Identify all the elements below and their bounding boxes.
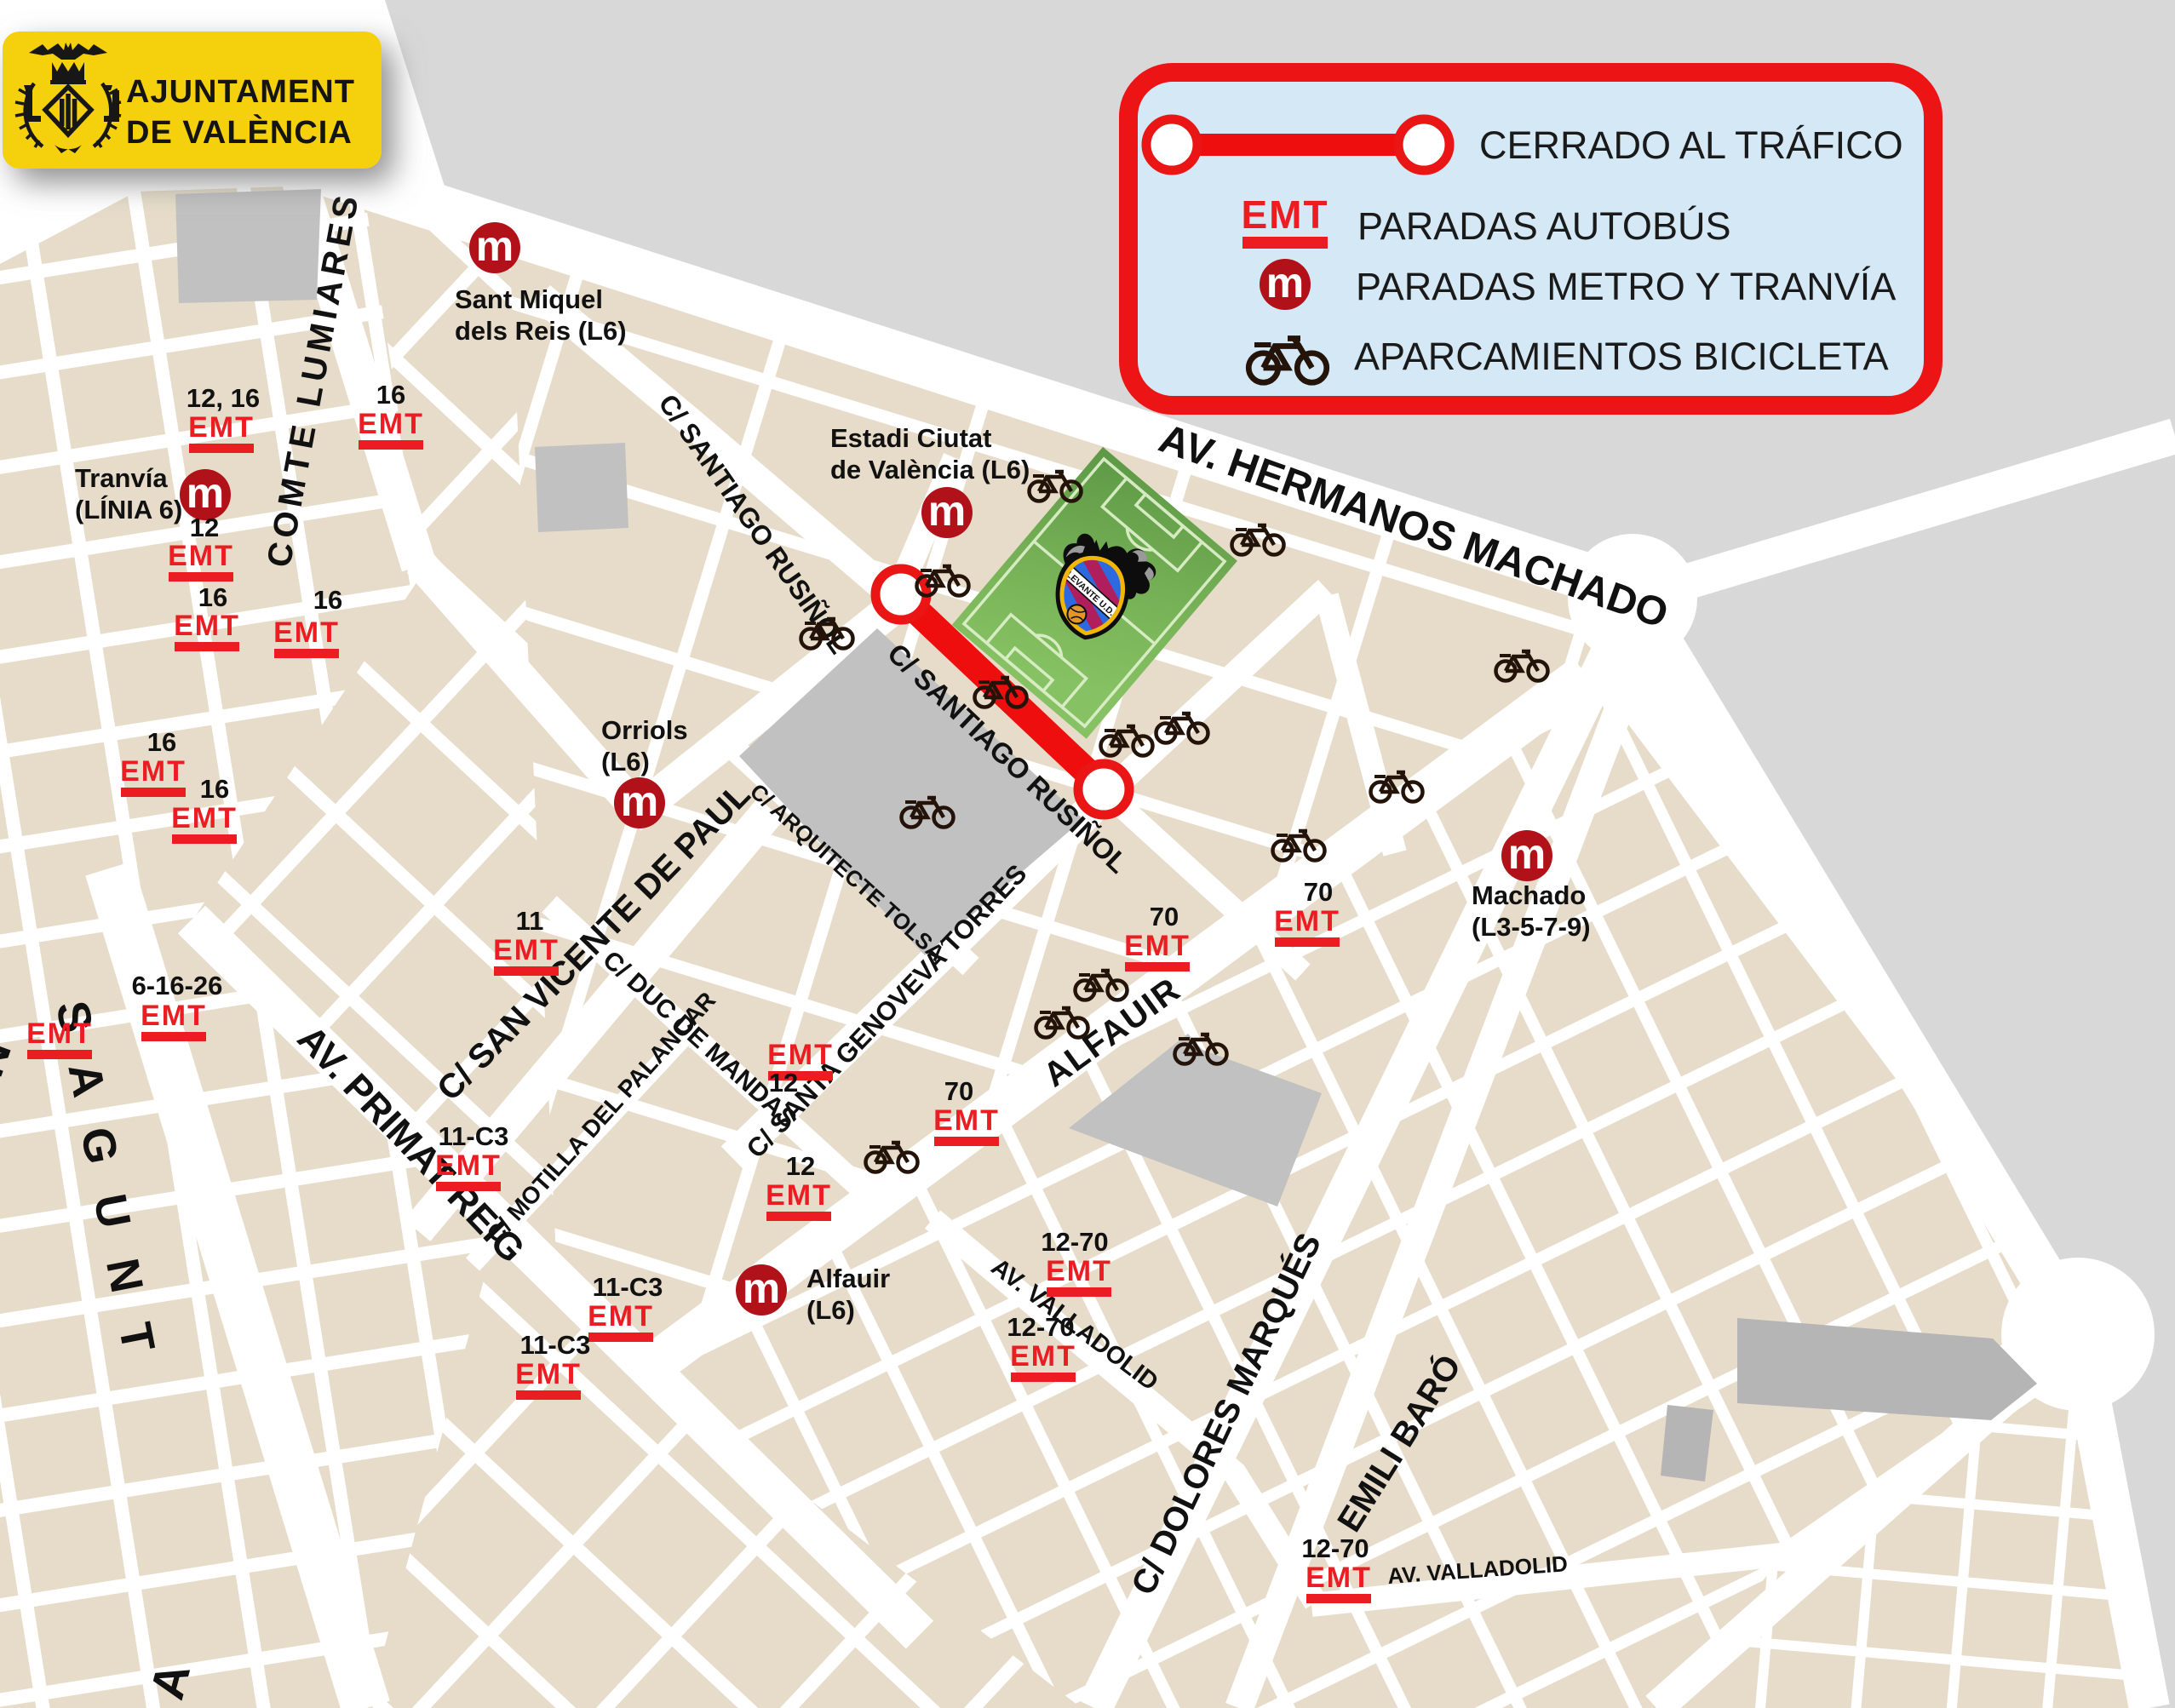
- svg-text:APARCAMIENTOS BICICLETA: APARCAMIENTOS BICICLETA: [1354, 335, 1889, 378]
- svg-text:6-16-26: 6-16-26: [132, 971, 223, 1000]
- svg-text:16: 16: [147, 727, 176, 757]
- svg-text:(L6): (L6): [806, 1295, 855, 1325]
- svg-text:EMT: EMT: [1241, 192, 1329, 237]
- svg-text:(L3-5-7-9): (L3-5-7-9): [1472, 912, 1591, 942]
- svg-text:Tranvía: Tranvía: [75, 463, 168, 493]
- svg-text:16: 16: [376, 380, 405, 410]
- svg-text:70: 70: [1304, 877, 1333, 907]
- svg-text:12, 16: 12, 16: [187, 383, 260, 413]
- svg-text:11-C3: 11-C3: [520, 1330, 591, 1360]
- svg-text:12: 12: [786, 1151, 815, 1181]
- svg-text:70: 70: [1150, 902, 1179, 931]
- svg-text:Orriols: Orriols: [601, 715, 688, 745]
- svg-text:Alfauir: Alfauir: [806, 1264, 890, 1293]
- svg-text:12: 12: [769, 1068, 798, 1098]
- svg-text:(LÍNIA 6): (LÍNIA 6): [75, 495, 182, 524]
- svg-text:16: 16: [200, 774, 229, 804]
- svg-text:12: 12: [190, 513, 219, 542]
- svg-text:11-C3: 11-C3: [439, 1121, 509, 1151]
- svg-text:PARADAS AUTOBÚS: PARADAS AUTOBÚS: [1357, 204, 1730, 248]
- svg-text:CERRADO AL TRÁFICO: CERRADO AL TRÁFICO: [1479, 123, 1903, 167]
- svg-text:70: 70: [944, 1076, 973, 1106]
- svg-text:dels Reis (L6): dels Reis (L6): [455, 316, 627, 346]
- svg-text:Estadi Ciutat: Estadi Ciutat: [830, 423, 991, 453]
- svg-text:12-70: 12-70: [1301, 1533, 1369, 1563]
- svg-text:16: 16: [198, 582, 227, 612]
- svg-text:AJUNTAMENT: AJUNTAMENT: [126, 74, 355, 110]
- svg-text:Sant Miquel: Sant Miquel: [455, 284, 603, 314]
- svg-text:Machado: Machado: [1472, 880, 1586, 910]
- svg-text:11-C3: 11-C3: [593, 1272, 663, 1302]
- svg-text:DE VALÈNCIA: DE VALÈNCIA: [126, 113, 353, 151]
- svg-text:11: 11: [516, 906, 544, 936]
- svg-text:16: 16: [313, 585, 342, 615]
- svg-text:(L6): (L6): [601, 747, 650, 777]
- svg-text:12-70: 12-70: [1041, 1227, 1108, 1257]
- svg-text:12-70: 12-70: [1007, 1312, 1074, 1342]
- svg-text:PARADAS METRO Y TRANVÍA: PARADAS METRO Y TRANVÍA: [1356, 265, 1896, 308]
- svg-text:de València (L6): de València (L6): [830, 455, 1030, 484]
